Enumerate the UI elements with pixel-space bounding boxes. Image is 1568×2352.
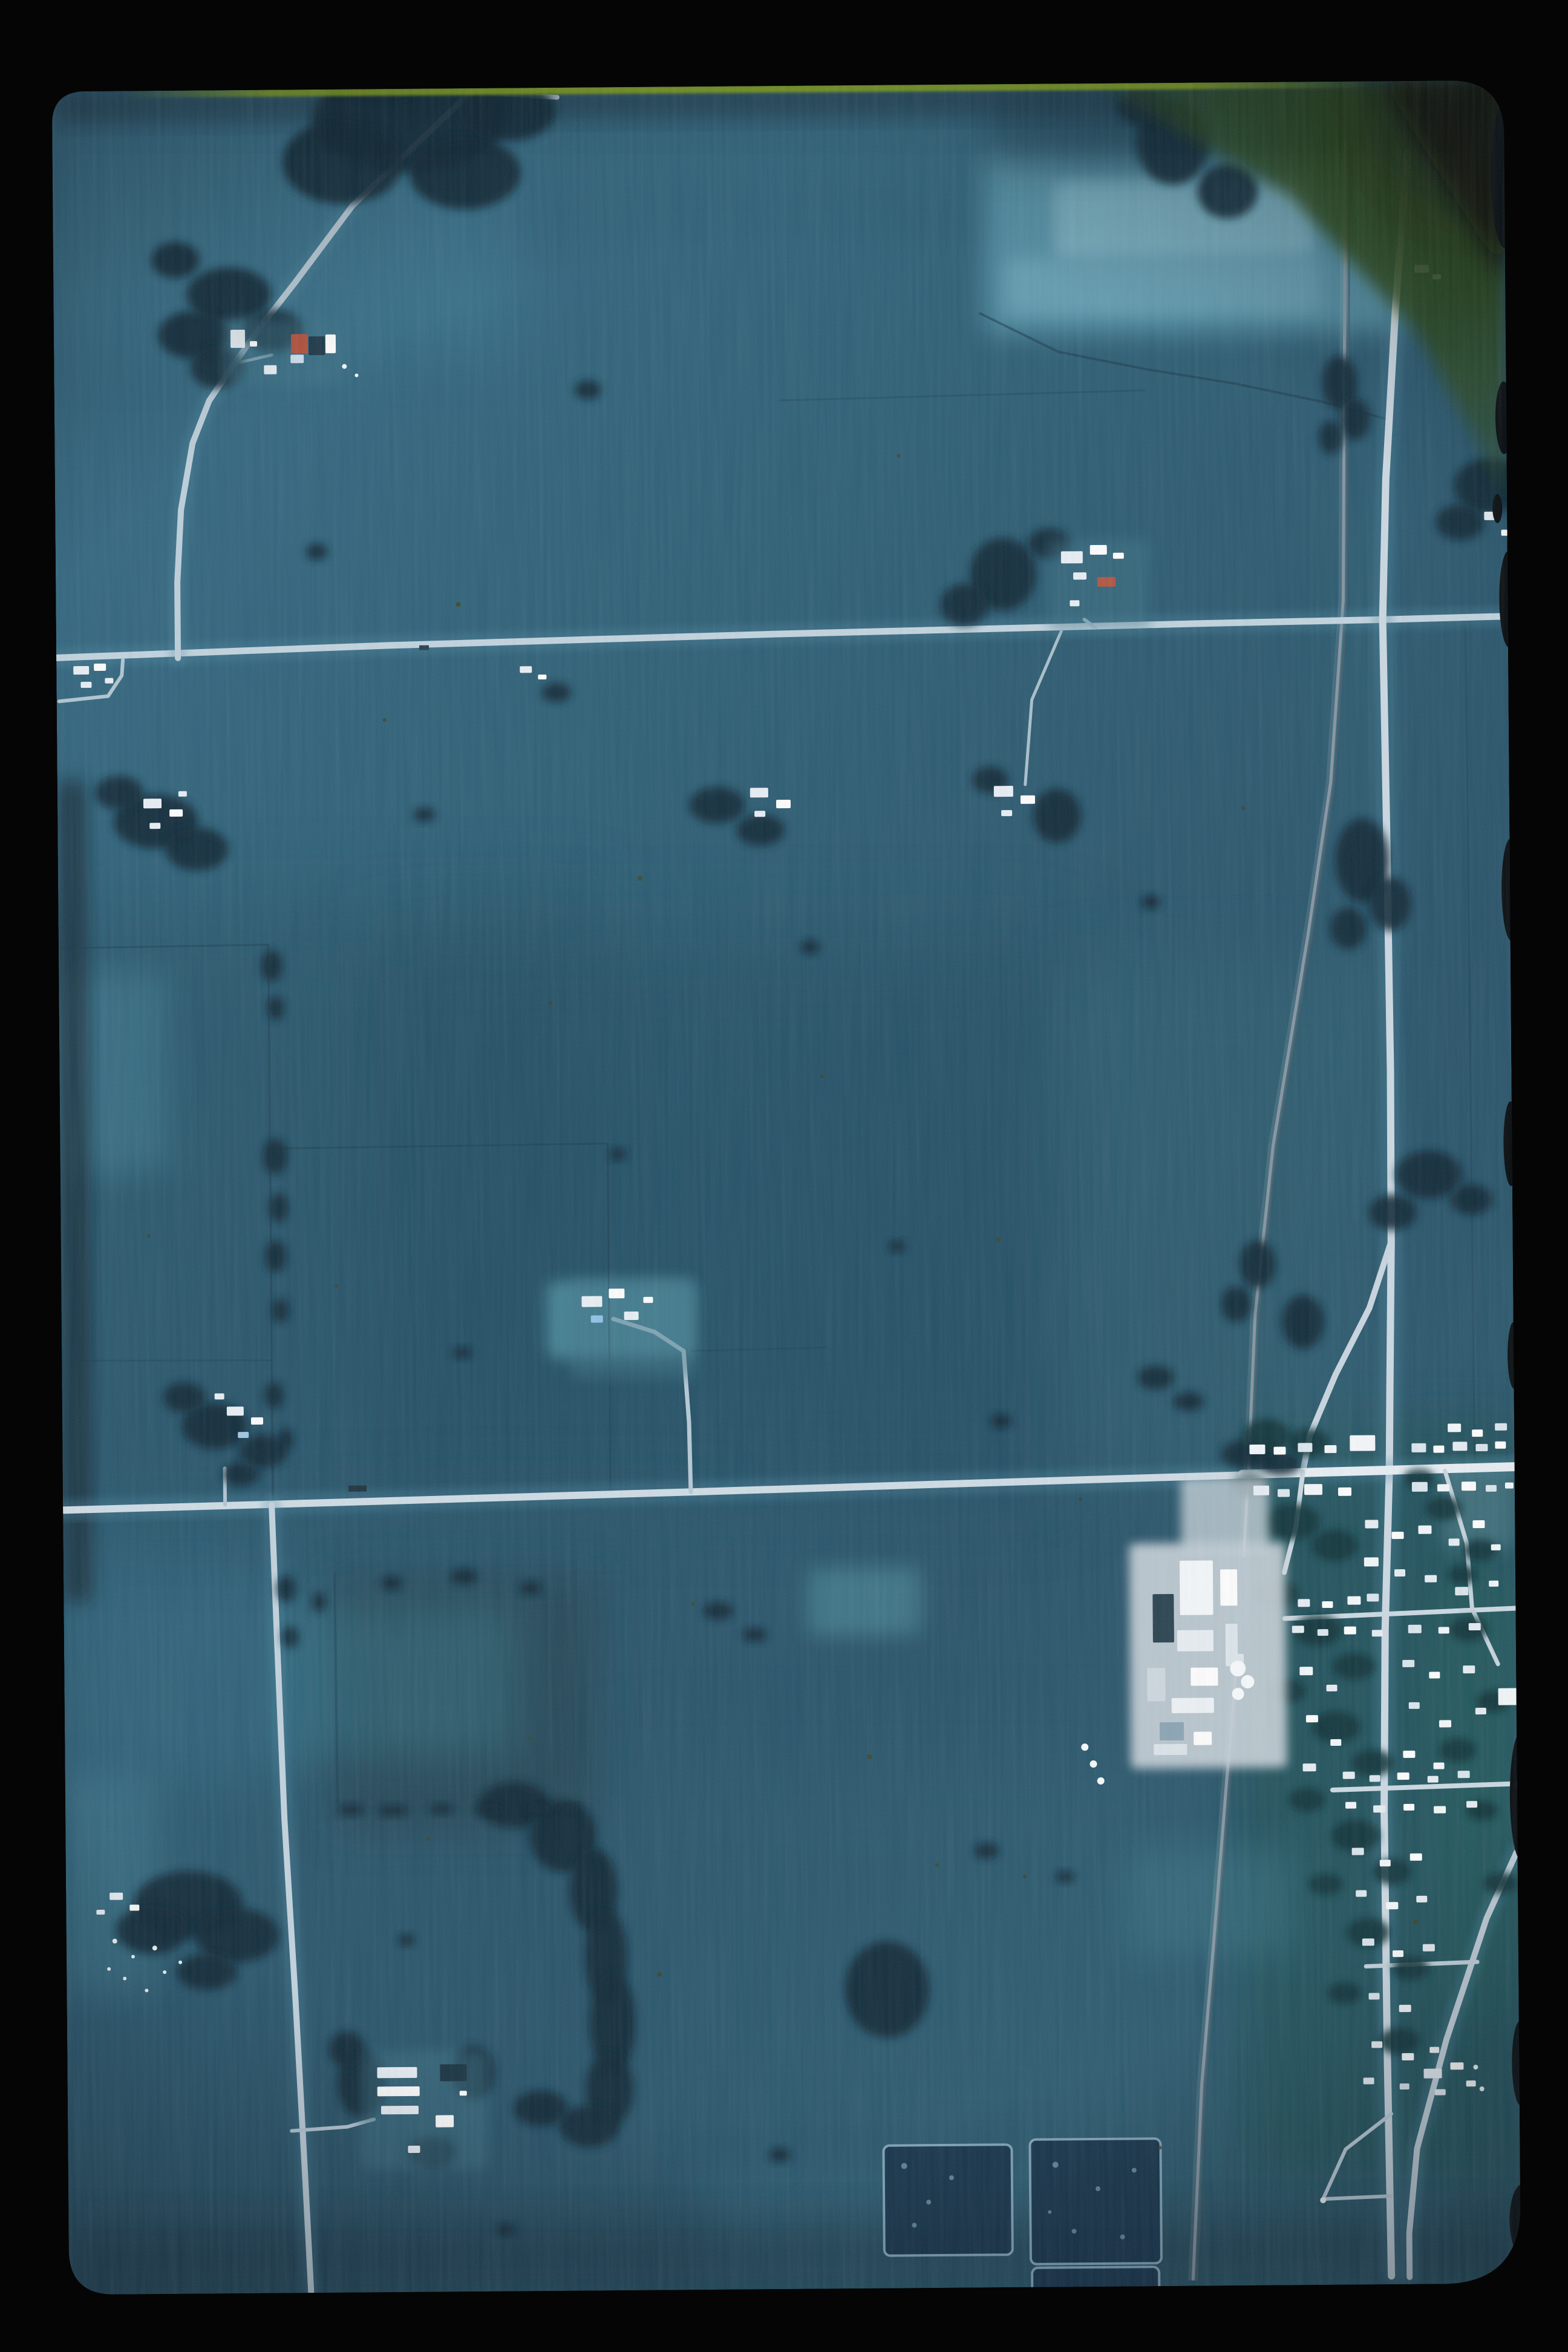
film-grain (52, 80, 1521, 2295)
slide-scan (0, 0, 1568, 2352)
photo (51, 42, 1540, 2316)
aerial-photo-slide (0, 0, 1568, 2352)
